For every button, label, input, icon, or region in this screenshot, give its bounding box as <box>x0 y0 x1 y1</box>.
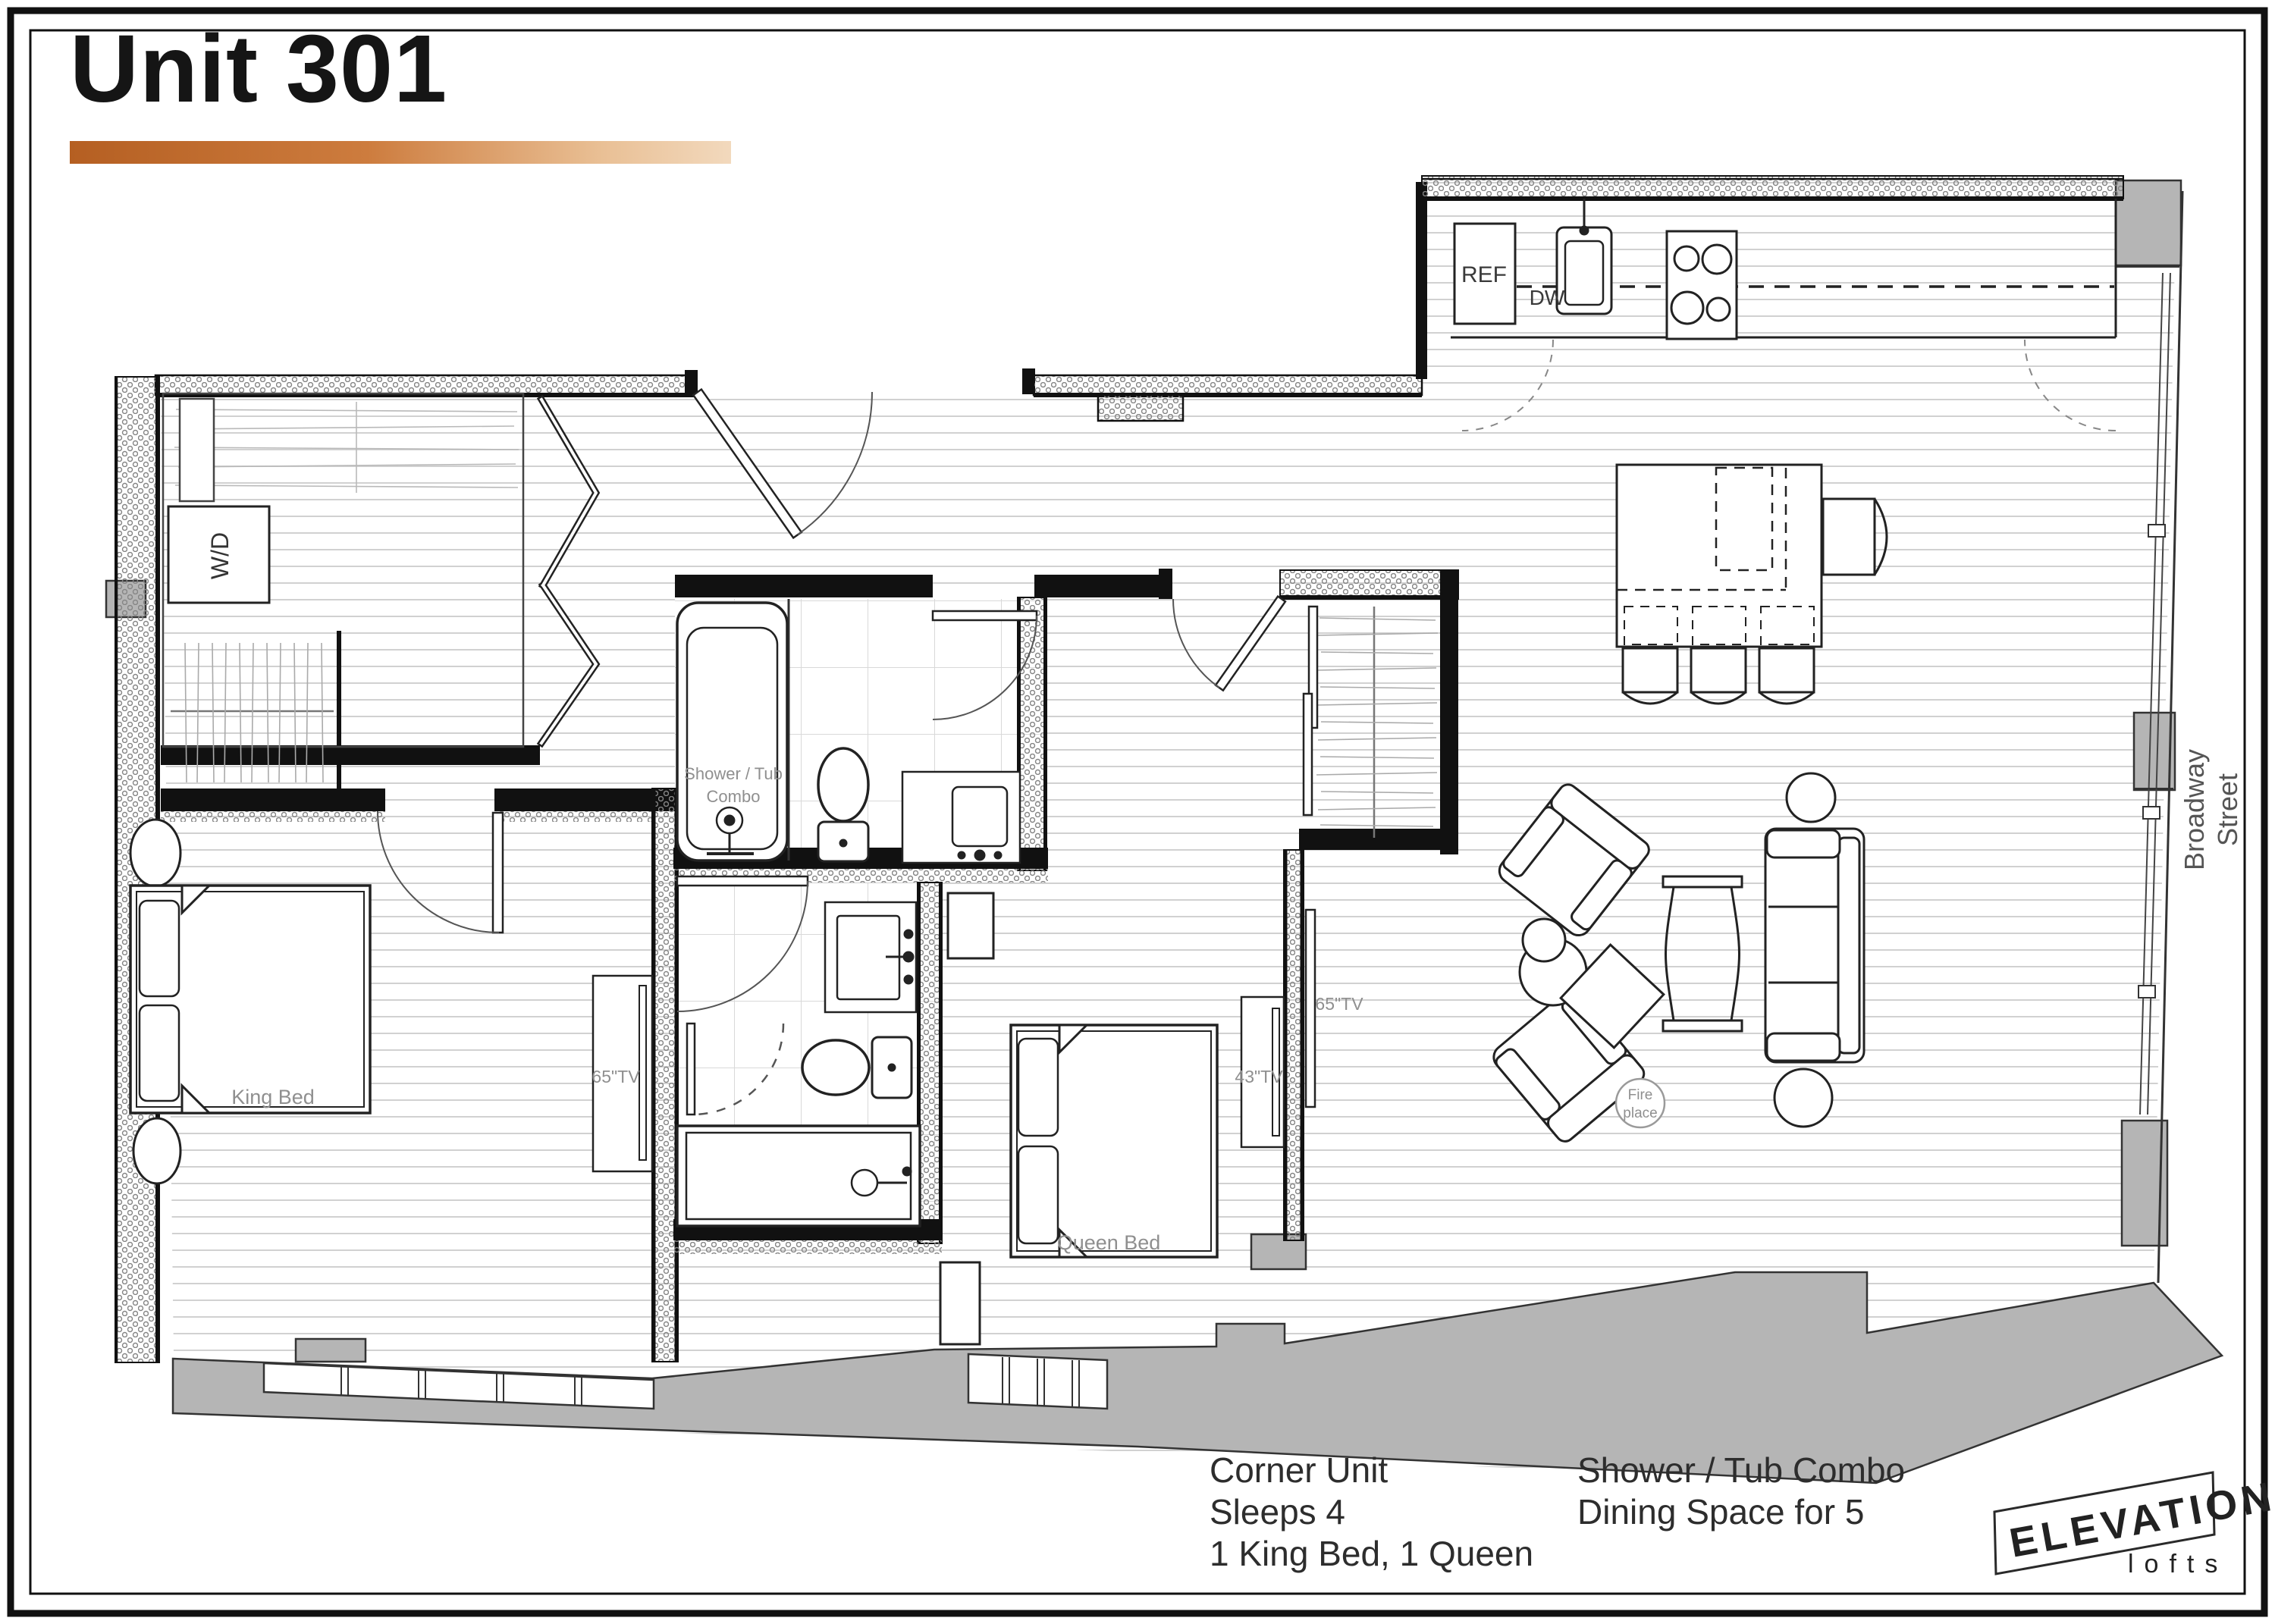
round-table-top <box>1787 773 1835 822</box>
street-label-line2: Street <box>2212 773 2243 846</box>
washer-dryer-label: W/D <box>206 532 234 579</box>
round-table-bottom <box>1774 1069 1832 1127</box>
floorplan-page: Unit 301 <box>0 0 2275 1624</box>
king-bed <box>130 886 370 1113</box>
washer-dryer: W/D <box>168 506 269 603</box>
street-label: Broadway Street <box>2179 749 2243 870</box>
footer-line: Corner Unit <box>1210 1450 1533 1491</box>
tub <box>677 603 787 861</box>
footer-line: Sleeps 4 <box>1210 1491 1533 1533</box>
dining-table <box>1617 465 1822 647</box>
vanity-2 <box>825 902 916 1012</box>
fireplace-label-2: place <box>1623 1105 1657 1121</box>
shower <box>677 1126 920 1226</box>
tv-living-label: 65"TV <box>1315 994 1363 1014</box>
toilet-1 <box>818 748 868 861</box>
footer-line: 1 King Bed, 1 Queen <box>1210 1533 1533 1575</box>
vanity-1 <box>902 772 1020 863</box>
floorplan-drawing: REF DW <box>0 0 2275 1624</box>
fireplace-label-1: Fire <box>1628 1087 1653 1103</box>
footer-summary-right: Shower / Tub Combo Dining Space for 5 <box>1577 1450 1905 1533</box>
fridge-label: REF <box>1461 262 1507 287</box>
nightstand <box>948 893 993 958</box>
fireplace: Fire place <box>1616 1079 1665 1127</box>
side-lamp <box>1523 919 1565 961</box>
shower-tub-label-2: Combo <box>707 787 761 806</box>
nightstand <box>133 1118 180 1184</box>
sofa <box>1765 829 1864 1062</box>
footer-summary-left: Corner Unit Sleeps 4 1 King Bed, 1 Queen <box>1210 1450 1533 1575</box>
tv-king-label: 65"TV <box>591 1067 640 1086</box>
brand-logo: ELEVATION lofts <box>1994 1472 2275 1579</box>
shower-tub-label-1: Shower / Tub <box>684 764 783 783</box>
king-bed-label: King Bed <box>231 1086 315 1108</box>
footer-line: Shower / Tub Combo <box>1577 1450 1905 1491</box>
tv-queen-label: 43"TV <box>1235 1067 1283 1086</box>
nightstand <box>940 1262 980 1344</box>
tv-living <box>1306 910 1315 1107</box>
queen-bed-label: Queen Bed <box>1057 1231 1161 1254</box>
toilet-2 <box>802 1037 912 1098</box>
street-label-line1: Broadway <box>2179 749 2210 870</box>
stove <box>1667 231 1737 339</box>
logo-sub: lofts <box>2128 1550 2228 1579</box>
footer-line: Dining Space for 5 <box>1577 1491 1905 1533</box>
dishwasher-label: DW <box>1530 286 1565 309</box>
queen-bed <box>1011 1025 1217 1257</box>
nightstand <box>130 820 180 886</box>
